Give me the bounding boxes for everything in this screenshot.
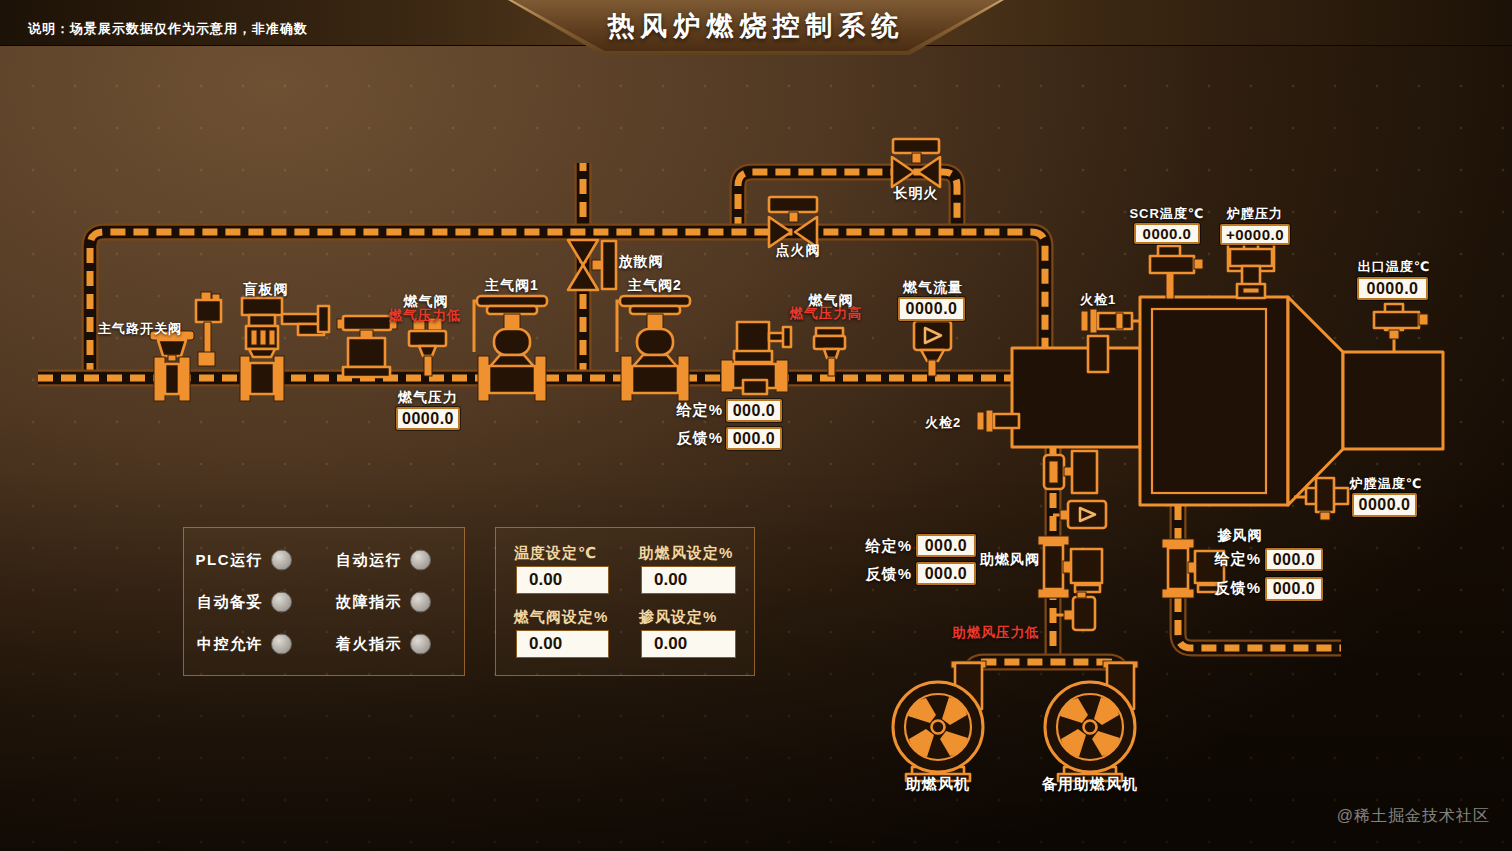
- burner-box: [1012, 336, 1140, 447]
- readout-outlet-temp: 0000.0: [1357, 277, 1428, 300]
- label-gas-pressure: 燃气压力: [398, 389, 458, 407]
- alarm-aux-air-pressure-low: 助燃风压力低: [953, 624, 1040, 642]
- readout-main-gas-feedback: 000.0: [726, 427, 782, 450]
- label-gas-valve-setpoint: 燃气阀设定%: [514, 608, 608, 627]
- outlet-temp-sensor-icon: [1374, 304, 1428, 352]
- label-outlet-temp: 出口温度℃: [1358, 258, 1431, 276]
- hmi-screen: 主气路开关阀 盲板阀 燃气阀 燃气压力低 主气阀1 放散阀 主气阀2 点火阀 长…: [0, 0, 1512, 851]
- page-title: 热风炉燃烧控制系统: [608, 8, 905, 44]
- status-panel: PLC运行 自动运行 自动备妥 故障指示 中控允许 着火指示: [183, 527, 465, 676]
- label-furnace-pressure: 炉膛压力: [1227, 205, 1283, 223]
- gas-flow-sensor-icon: [914, 321, 951, 376]
- process-diagram: [0, 0, 1512, 851]
- label-mix-air-setpoint: 掺风设定%: [639, 608, 717, 627]
- mix-air-setpoint-input[interactable]: [641, 630, 736, 658]
- settings-panel: 温度设定℃ 助燃风设定% 燃气阀设定% 掺风设定%: [495, 527, 755, 676]
- label-mix-air-given: 给定%: [1215, 550, 1261, 569]
- label-aux-fan-feedback: 反馈%: [866, 565, 912, 584]
- label-aux-air-setpoint: 助燃风设定%: [639, 544, 733, 563]
- flame-detector-2-icon: [977, 410, 1019, 432]
- label-mix-air-feedback: 反馈%: [1215, 579, 1261, 598]
- label-main-gas-feedback: 反馈%: [677, 429, 723, 448]
- label-main-gas-given: 给定%: [677, 401, 723, 420]
- status-central-permit: 中控允许: [197, 634, 292, 655]
- backup-aux-fan-icon[interactable]: [1045, 661, 1138, 781]
- label-backup-aux-fan: 备用助燃风机: [1042, 775, 1138, 794]
- status-auto-run: 自动运行: [336, 550, 431, 571]
- label-furnace-temp: 炉膛温度℃: [1350, 475, 1423, 493]
- aux-fan-valve-icon[interactable]: [1038, 536, 1102, 598]
- label-scr-temp: SCR温度℃: [1129, 205, 1204, 223]
- aux-air-setpoint-input[interactable]: [641, 566, 736, 594]
- alarm-gas-pressure-low: 燃气压力低: [389, 307, 462, 325]
- status-label: 中控允许: [197, 635, 263, 654]
- label-main-valve-1: 主气阀1: [485, 277, 539, 295]
- disclaimer-text: 说明：场景展示数据仅作为示意用，非准确数: [28, 20, 308, 38]
- status-indicator-light: [271, 592, 292, 613]
- status-indicator-light: [410, 592, 431, 613]
- gas-valve-setpoint-input[interactable]: [516, 630, 609, 658]
- readout-gas-flow: 0000.0: [898, 297, 965, 321]
- label-aux-fan-given: 给定%: [866, 537, 912, 556]
- inline-sensor-icon: [196, 292, 221, 366]
- status-indicator-light: [410, 634, 431, 655]
- status-indicator-light: [271, 634, 292, 655]
- readout-furnace-temp: 0000.0: [1352, 493, 1417, 517]
- gas-pressure-transmitter-high-icon: [814, 328, 845, 376]
- label-ignition-valve: 点火阀: [776, 242, 821, 260]
- watermark: @稀土掘金技术社区: [1337, 806, 1490, 827]
- label-main-valve-2: 主气阀2: [628, 277, 682, 295]
- label-vent-valve: 放散阀: [619, 253, 664, 271]
- label-flame-detector-1: 火检1: [1080, 291, 1116, 309]
- status-label: PLC运行: [196, 551, 264, 570]
- temp-setpoint-input[interactable]: [516, 566, 609, 594]
- main-control-valve-2[interactable]: [617, 296, 690, 401]
- label-main-switch-valve: 主气路开关阀: [98, 320, 182, 338]
- status-flame-on: 着火指示: [336, 634, 431, 655]
- status-label: 自动运行: [336, 551, 402, 570]
- readout-aux-fan-given: 000.0: [916, 534, 976, 557]
- gas-pressure-transmitter-low-icon: [409, 318, 446, 376]
- aux-fan-icon[interactable]: [893, 661, 986, 781]
- readout-aux-fan-feedback: 000.0: [916, 562, 976, 585]
- status-label: 故障指示: [336, 593, 402, 612]
- label-blind-valve: 盲板阀: [244, 281, 289, 299]
- readout-main-gas-given: 000.0: [726, 399, 782, 422]
- scr-temp-sensor-icon: [1150, 246, 1203, 299]
- label-aux-fan-valve: 助燃风阀: [980, 551, 1040, 569]
- label-flame-detector-2: 火检2: [925, 414, 961, 432]
- label-gas-flow: 燃气流量: [903, 279, 963, 297]
- main-control-valve-1[interactable]: [474, 296, 547, 401]
- label-mix-air-valve: 掺风阀: [1218, 527, 1263, 545]
- label-pilot-flame: 长明火: [894, 185, 939, 203]
- status-indicator-light: [271, 550, 292, 571]
- status-fault: 故障指示: [336, 592, 431, 613]
- readout-gas-pressure: 0000.0: [396, 407, 460, 430]
- air-inlet-fitting-icon: [1044, 451, 1097, 493]
- alarm-gas-pressure-high: 燃气压力高: [790, 305, 863, 323]
- gas-shutoff-valve[interactable]: [337, 316, 397, 377]
- status-indicator-light: [410, 550, 431, 571]
- readout-mix-air-given: 000.0: [1265, 548, 1323, 571]
- label-aux-fan: 助燃风机: [906, 775, 970, 794]
- readout-scr-temp: 0000.0: [1134, 223, 1200, 244]
- status-plc-run: PLC运行: [196, 550, 293, 571]
- status-label: 着火指示: [336, 635, 402, 654]
- status-label: 自动备妥: [197, 593, 263, 612]
- main-switch-valve[interactable]: [150, 331, 194, 401]
- readout-mix-air-feedback: 000.0: [1265, 577, 1323, 601]
- readout-furnace-pressure: +0000.0: [1220, 224, 1290, 245]
- status-auto-ready: 自动备妥: [197, 592, 292, 613]
- label-temp-setpoint: 温度设定℃: [514, 544, 597, 563]
- furnace-pressure-sensor-icon: [1228, 244, 1274, 298]
- gas-solenoid-valve[interactable]: [721, 322, 791, 394]
